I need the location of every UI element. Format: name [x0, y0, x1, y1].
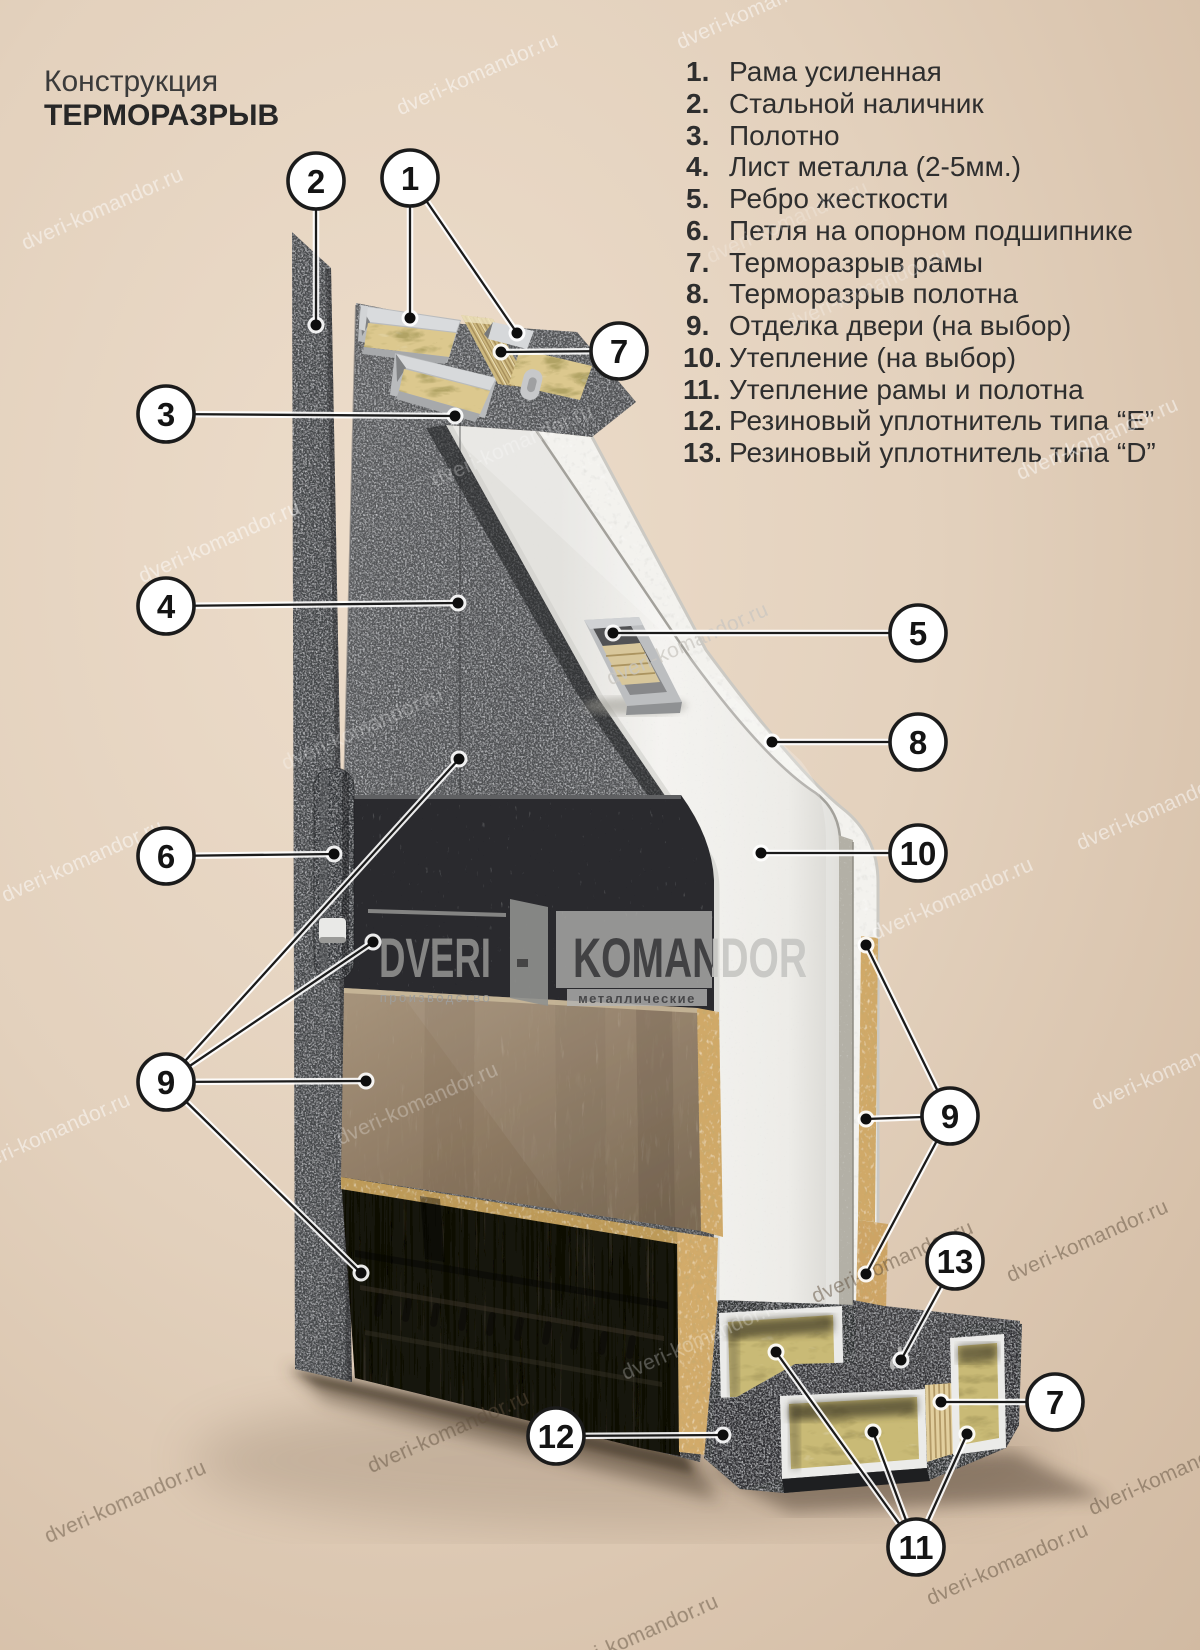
- svg-text:13: 13: [937, 1243, 974, 1280]
- svg-text:12: 12: [538, 1418, 575, 1455]
- svg-text:9: 9: [941, 1098, 959, 1135]
- svg-text:9.: 9.: [686, 310, 709, 341]
- svg-text:4.: 4.: [686, 151, 709, 182]
- svg-text:6.: 6.: [686, 215, 709, 246]
- svg-text:Лист металла (2-5мм.): Лист металла (2-5мм.): [729, 151, 1021, 182]
- svg-text:Стальной наличник: Стальной наличник: [729, 88, 984, 119]
- svg-text:производство: производство: [380, 990, 492, 1005]
- svg-text:12.: 12.: [683, 405, 722, 436]
- svg-text:Утепление рамы и полотна: Утепление рамы и полотна: [729, 374, 1084, 405]
- svg-text:5: 5: [909, 615, 927, 652]
- svg-text:Отделка двери (на выбор): Отделка двери (на выбор): [729, 310, 1071, 341]
- svg-text:11.: 11.: [683, 374, 720, 405]
- svg-text:10.: 10.: [683, 342, 722, 373]
- svg-text:13.: 13.: [683, 437, 722, 468]
- svg-text:металлические: металлические: [578, 991, 696, 1006]
- svg-text:Утепление (на выбор): Утепление (на выбор): [729, 342, 1016, 373]
- svg-text:2.: 2.: [686, 88, 709, 119]
- svg-text:Конструкция: Конструкция: [44, 65, 218, 98]
- svg-text:9: 9: [157, 1064, 175, 1101]
- svg-text:11: 11: [899, 1529, 934, 1566]
- svg-text:8: 8: [909, 724, 927, 761]
- svg-text:1: 1: [401, 160, 419, 197]
- svg-text:4: 4: [157, 588, 176, 625]
- svg-text:Рама усиленная: Рама усиленная: [729, 56, 942, 87]
- svg-text:7: 7: [610, 333, 628, 370]
- svg-text:DVERI: DVERI: [379, 926, 491, 989]
- svg-text:1.: 1.: [686, 56, 709, 87]
- svg-text:ТЕРМОРАЗРЫВ: ТЕРМОРАЗРЫВ: [44, 99, 279, 132]
- svg-text:2: 2: [307, 163, 325, 200]
- svg-text:3.: 3.: [686, 120, 709, 151]
- svg-text:8.: 8.: [686, 278, 709, 309]
- svg-text:Полотно: Полотно: [729, 120, 840, 151]
- svg-text:6: 6: [157, 838, 175, 875]
- svg-text:10: 10: [900, 835, 937, 872]
- svg-text:7: 7: [1046, 1384, 1064, 1421]
- svg-text:5.: 5.: [686, 183, 709, 214]
- svg-text:3: 3: [157, 396, 175, 433]
